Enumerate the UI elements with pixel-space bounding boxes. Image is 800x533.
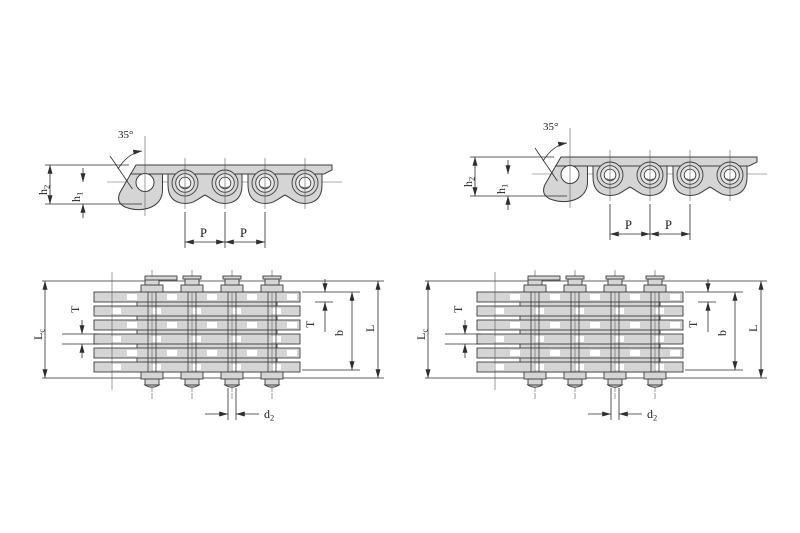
h2-label: h2: [461, 177, 477, 187]
side-view-right: 35° h2 h1 P P: [461, 121, 767, 240]
pitch-label: P: [625, 218, 632, 232]
pitch-dimensions: P P: [610, 204, 690, 240]
pin-heads-top: [141, 276, 283, 292]
d2-dimension: d2: [205, 388, 274, 423]
pin-heads-top: [524, 276, 666, 292]
t-label: T: [303, 320, 317, 328]
t-label: T: [68, 305, 82, 313]
lc-label: Lc: [414, 329, 430, 340]
drawing-canvas: 35° h2 h1 P P: [0, 0, 800, 533]
pitch-label: P: [200, 226, 207, 240]
lc-label: Lc: [31, 329, 47, 340]
d2-label: d2: [264, 407, 274, 423]
b-label: b: [332, 330, 346, 336]
angle-label: 35°: [118, 129, 133, 141]
l-dimension: L: [363, 281, 378, 378]
side-view-left: 35° h2 h1 P P: [36, 129, 342, 248]
h1-label: h1: [69, 192, 85, 202]
h1-label: h1: [494, 184, 510, 194]
t-label: T: [451, 305, 465, 313]
t-dimension-left: T: [445, 305, 481, 358]
l-label: L: [363, 325, 377, 332]
angle-label: 35°: [543, 121, 558, 133]
d2-dimension: d2: [588, 388, 657, 423]
lc-dimension: Lc: [31, 281, 47, 378]
pin-heads-bottom: [141, 372, 283, 399]
pitch-label: P: [665, 218, 672, 232]
inner-plate-stack: [520, 292, 660, 372]
pin-heads-bottom: [524, 372, 666, 399]
leaf-chain-engineering-drawing: 35° h2 h1 P P: [0, 0, 800, 533]
plan-view-right: d2 Lc L b T: [414, 270, 767, 423]
h1-dimension: h1: [69, 168, 85, 218]
d2-label: d2: [647, 407, 657, 423]
l-dimension: L: [746, 281, 761, 378]
pitch-label: P: [240, 226, 247, 240]
t-dimension-right: T: [686, 279, 716, 332]
plan-view-left: d2 Lc L b T: [31, 270, 384, 423]
inner-plate-stack: [137, 292, 277, 372]
lc-dimension: Lc: [414, 281, 430, 378]
h2-label: h2: [36, 185, 52, 195]
pitch-dimensions: P P: [185, 212, 265, 248]
b-dimension: b: [685, 292, 743, 370]
b-dimension: b: [302, 292, 360, 370]
h1-dimension: h1: [494, 160, 510, 210]
t-label: T: [686, 320, 700, 328]
t-dimension-right: T: [303, 279, 333, 332]
b-label: b: [715, 330, 729, 336]
t-dimension-left: T: [62, 305, 98, 358]
l-label: L: [746, 325, 760, 332]
